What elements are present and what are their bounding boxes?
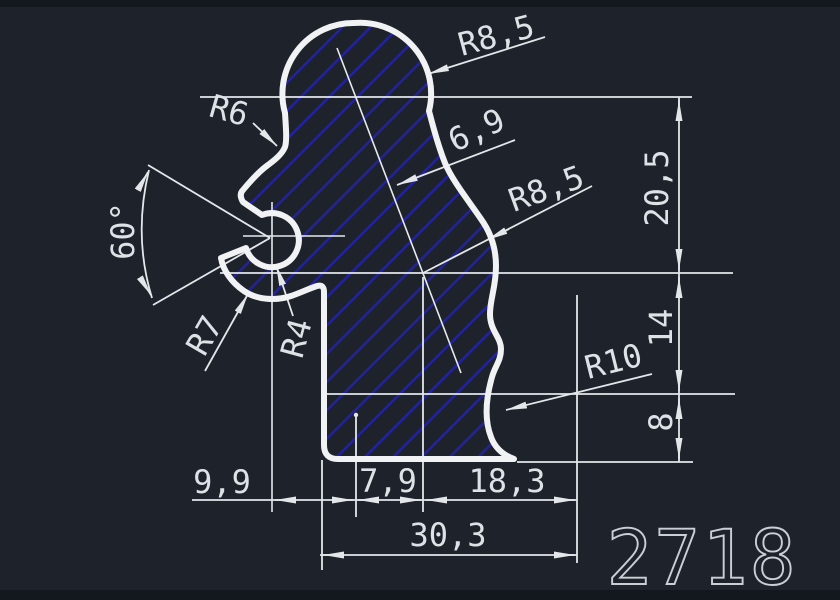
dim-label-height-middle: 14 (642, 309, 680, 348)
part-number: 2718 (606, 513, 797, 600)
dim-label-radius-scallop: R10 (581, 336, 646, 387)
cad-drawing-canvas[interactable]: R8,5 R6 6,9 R8,5 20,5 60° R7 R4 14 R10 8… (0, 0, 840, 600)
dim-label-height-lower: 8 (642, 412, 680, 431)
point-marker (354, 413, 358, 417)
dim-label-radius-head: R8,5 (454, 7, 538, 64)
dim-label-width-left: 9,9 (193, 463, 251, 501)
cad-viewport: R8,5 R6 6,9 R8,5 20,5 60° R7 R4 14 R10 8… (0, 0, 840, 600)
dim-label-radius-hook-outer: R7 (178, 309, 230, 361)
dim-label-radius-hook-bore: R4 (273, 315, 320, 362)
dim-label-height-upper: 20,5 (638, 149, 676, 226)
leader-r6 (253, 123, 277, 146)
leader-r10 (506, 374, 652, 410)
angle-arc (142, 170, 152, 298)
dim-label-width-middle: 7,9 (359, 462, 417, 500)
dim-label-radius-neck: R6 (205, 87, 253, 134)
dim-label-wall-thickness: 6,9 (442, 101, 510, 160)
dim-label-slot-angle: 60° (104, 202, 142, 260)
dim-label-width-total: 30,3 (409, 516, 486, 554)
dim-label-width-right: 18,3 (468, 462, 545, 500)
